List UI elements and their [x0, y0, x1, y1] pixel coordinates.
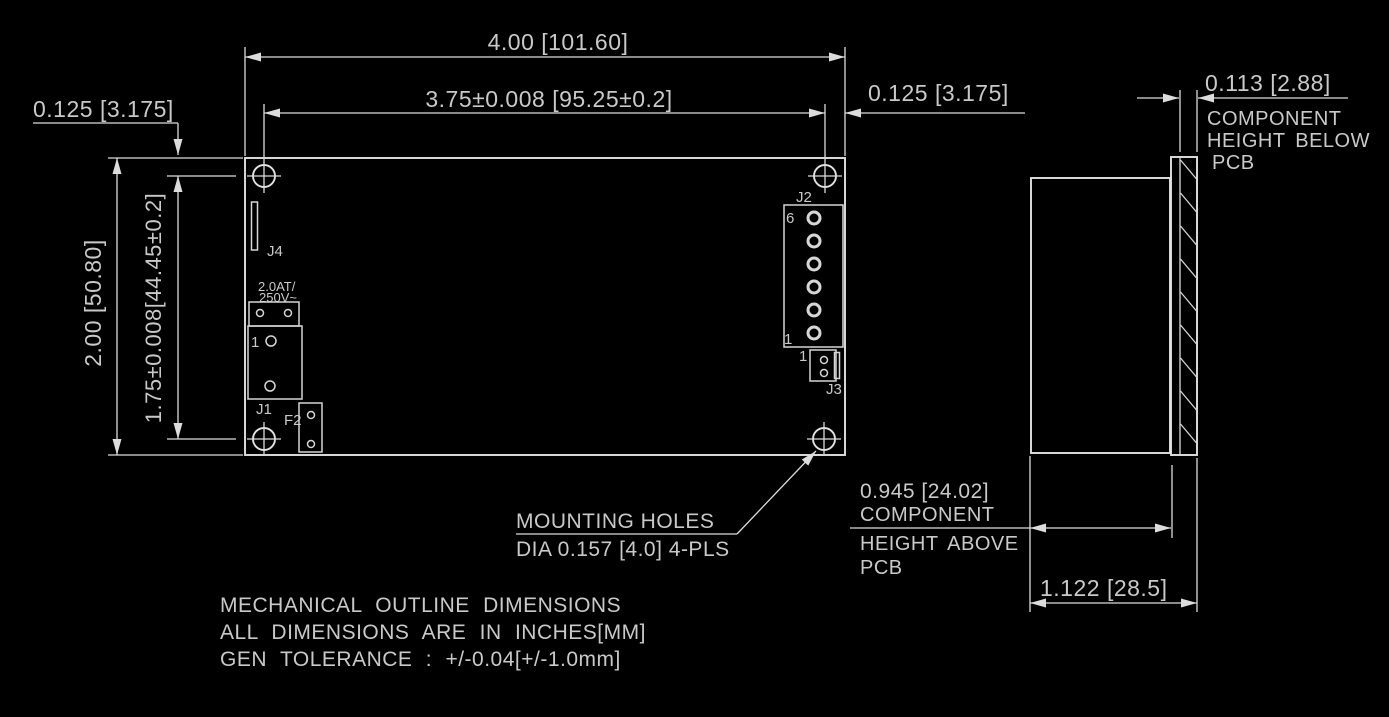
note-line-2: ALL DIMENSIONS ARE IN INCHES[MM]: [220, 621, 646, 644]
dim-above-pcb-text: 0.945 [24.02]: [860, 480, 989, 503]
f2-fuse-body: [299, 403, 322, 452]
j2-pin-holes: [808, 212, 820, 339]
mounting-note-line2: DIA 0.157 [4.0] 4-PLS: [516, 538, 730, 561]
j3-hole-1: [821, 357, 828, 364]
note-line-1: MECHANICAL OUTLINE DIMENSIONS: [220, 594, 621, 617]
j2-pin6-label: 6: [786, 210, 794, 227]
j2-label: J2: [796, 189, 812, 206]
mechanical-outline-drawing: J4 2.0AT/ 250V~ 1 J1 F2 J2 6 1 1: [0, 0, 1389, 717]
j1-pin-hole-1: [266, 336, 276, 346]
side-view-dimensions: 0.113 [2.88] COMPONENT HEIGHT BELOW PCB …: [850, 70, 1370, 612]
dim-total-text: 1.122 [28.5]: [1040, 575, 1168, 601]
j3-connector-tab: [835, 353, 840, 379]
j3-label: J3: [826, 381, 842, 398]
j2-pin1-label: 1: [784, 331, 792, 348]
dim-edge-offset-left-text: 0.125 [3.175]: [33, 96, 174, 122]
dim-edge-offset-right-text: 0.125 [3.175]: [868, 80, 1009, 106]
dim-hole-span-v-text: 1.75±0.008[44.45±0.2]: [141, 193, 166, 423]
j4-connector-slot: [252, 202, 258, 250]
mounting-hole-bottom-right: [807, 422, 841, 454]
general-notes: MECHANICAL OUTLINE DIMENSIONS ALL DIMENS…: [220, 594, 646, 671]
j1-pin1-label: 1: [251, 334, 259, 351]
mounting-note-leader: [737, 451, 816, 534]
note-line-3: GEN TOLERANCE : +/-0.04[+/-1.0mm]: [220, 648, 621, 671]
drawing-canvas: J4 2.0AT/ 250V~ 1 J1 F2 J2 6 1 1: [0, 0, 1389, 717]
dim-hole-span-text: 3.75±0.008 [95.25±0.2]: [425, 86, 672, 112]
dim-height-text: 2.00 [50.80]: [80, 239, 106, 367]
below-pcb-label-line2: HEIGHT BELOW: [1207, 130, 1370, 152]
fuse-clip-hole-left: [257, 310, 264, 317]
above-pcb-label-line2: HEIGHT ABOVE: [860, 533, 1019, 555]
dim-below-pcb-text: 0.113 [2.88]: [1205, 70, 1331, 96]
pcb-side-view: [1031, 157, 1197, 455]
component-body-outline: [1031, 178, 1170, 453]
pcb-board-outline: [245, 158, 845, 455]
below-pcb-label-line1: COMPONENT: [1207, 108, 1342, 130]
j1-pin-hole-2: [265, 381, 275, 391]
mounting-note-line1: MOUNTING HOLES: [516, 510, 714, 533]
f2-hole-bottom: [308, 441, 315, 448]
fuse-clip-hole-right: [285, 310, 292, 317]
below-pcb-label-line3: PCB: [1212, 152, 1255, 174]
j1-label: J1: [256, 401, 272, 418]
f2-hole-top: [308, 412, 315, 419]
pcb-top-view: J4 2.0AT/ 250V~ 1 J1 F2 J2 6 1 1: [245, 158, 845, 455]
mounting-hole-bottom-left: [247, 422, 281, 454]
j4-label: J4: [267, 243, 283, 260]
pcb-hatching: [1181, 160, 1197, 443]
above-pcb-label-line1: COMPONENT: [860, 504, 995, 526]
above-pcb-label-line3: PCB: [860, 557, 903, 579]
j3-pin1-label: 1: [799, 348, 807, 365]
j3-hole-2: [821, 370, 828, 377]
dim-width-text: 4.00 [101.60]: [488, 29, 629, 55]
